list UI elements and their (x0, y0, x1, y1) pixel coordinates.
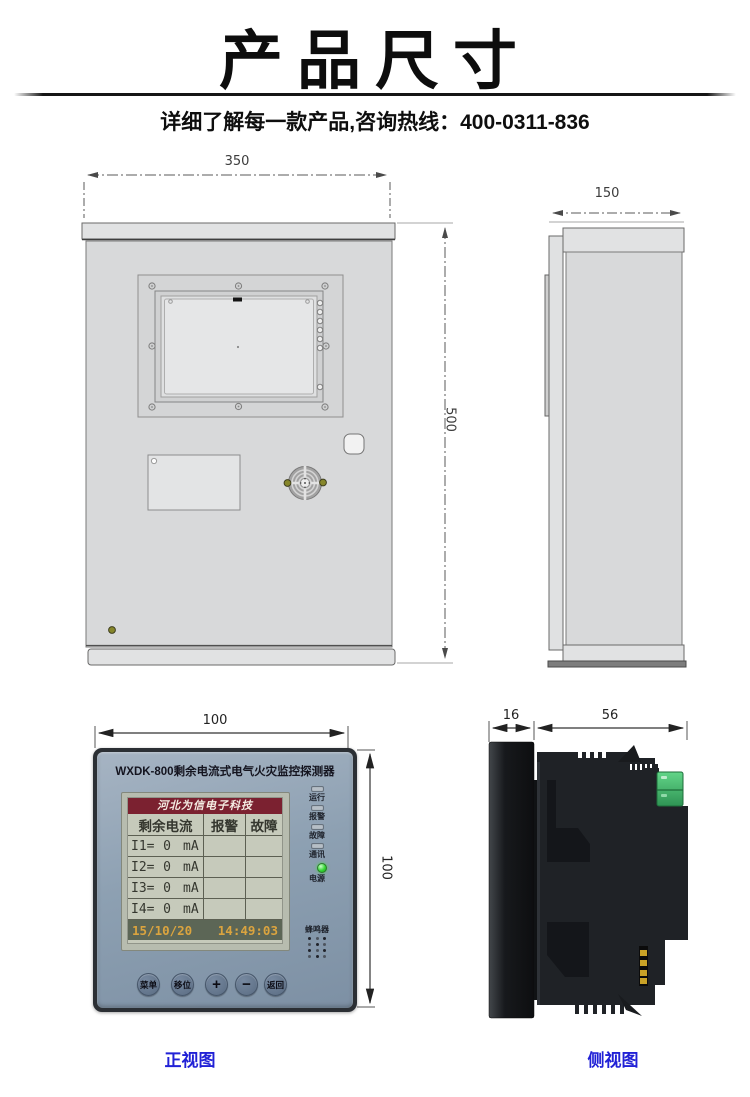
back-button: 返回 (264, 973, 287, 996)
run-led-label: 运行 (309, 793, 325, 802)
detector-front-figure: 100 100 WXDK-800剩余电流式电气火灾监控探测器 河北为信电子科技 … (85, 715, 395, 1015)
status-led-column: 运行 报警 故障 通讯 电源 (302, 786, 332, 886)
lcd-row-i4: I4=0mA (128, 899, 282, 920)
lcd-time: 14:49:03 (218, 923, 278, 938)
device-body-dim: 56 (580, 708, 640, 723)
shift-button: 移位 (171, 973, 194, 996)
fault-led-label: 故障 (309, 831, 325, 840)
lcd-row-i3: I3=0mA (128, 878, 282, 899)
comm-led (311, 843, 324, 849)
lcd-screen: 河北为信电子科技 剩余电流 报警 故障 I1=0mA I2=0mA I3=0mA (127, 797, 283, 944)
buzzer-holes (308, 937, 328, 958)
channel-label: I1= (131, 839, 159, 854)
device-height-dim: 100 (379, 853, 394, 883)
side-view-caption: 侧视图 (578, 1046, 648, 1071)
lcd-table: 剩余电流 报警 故障 I1=0mA I2=0mA I3=0mA I4= (128, 814, 282, 920)
alarm-led (311, 805, 324, 811)
detector-side-drawing (480, 710, 705, 1022)
lcd-col-header-alarm: 报警 (204, 814, 246, 835)
channel-value: 0 (159, 860, 175, 875)
fault-led (311, 824, 324, 830)
channel-label: I3= (131, 881, 159, 896)
channel-label: I2= (131, 860, 159, 875)
lcd-row-i1: I1=0mA (128, 836, 282, 857)
cabinet-side-body (545, 228, 686, 667)
cabinet-bottom-led (109, 627, 116, 634)
detector-model-title: WXDK-800剩余电流式电气火灾监控探测器 (103, 763, 347, 779)
minus-button: − (235, 973, 258, 996)
speaker-screw-right (320, 479, 327, 486)
page-title: 产品尺寸 (0, 10, 750, 102)
comm-led-label: 通讯 (309, 850, 325, 859)
device-bezel-dim: 16 (491, 708, 531, 723)
cabinet-front-drawing (75, 160, 475, 695)
cabinet-side-figure: 150 (540, 190, 710, 685)
cabinet-height-dim: 500 (443, 404, 458, 436)
channel-unit: mA (183, 902, 199, 917)
channel-unit: mA (183, 881, 199, 896)
lcd-brand-banner: 河北为信电子科技 (128, 798, 282, 814)
terminal-block (657, 772, 683, 806)
lcd-col-header-fault: 故障 (246, 814, 282, 835)
lcd-date: 15/10/20 (132, 923, 192, 938)
device-width-dim: 100 (180, 713, 250, 728)
cabinet-display-panel (138, 275, 343, 417)
lcd-col-header-residual-current: 剩余电流 (128, 814, 204, 835)
lcd-row-i2: I2=0mA (128, 857, 282, 878)
channel-value: 0 (159, 839, 175, 854)
channel-label: I4= (131, 902, 159, 917)
channel-value: 0 (159, 881, 175, 896)
cabinet-nameplate (148, 455, 240, 510)
plus-button: + (205, 973, 228, 996)
device-height-dimension (357, 750, 375, 1007)
hotline-subtitle: 详细了解每一款产品,咨询热线：400-0311-836 (0, 106, 750, 136)
run-led (311, 786, 324, 792)
power-led (317, 863, 327, 873)
power-led-label: 电源 (309, 874, 325, 883)
channel-unit: mA (183, 839, 199, 854)
product-dimensions-page: 产品尺寸 详细了解每一款产品,咨询热线：400-0311-836 (0, 0, 750, 1097)
menu-button: 菜单 (137, 973, 160, 996)
lcd-status-bar: 15/10/20 14:49:03 (128, 920, 282, 940)
detector-side-figure: 16 56 (480, 710, 705, 1022)
channel-value: 0 (159, 902, 175, 917)
buzzer-label: 蜂鸣器 (299, 924, 335, 935)
depth-dimension-lines (549, 213, 684, 222)
cabinet-width-dim: 350 (187, 154, 287, 169)
channel-unit: mA (183, 860, 199, 875)
cabinet-keyhole (344, 434, 364, 454)
header-divider (14, 93, 736, 96)
speaker-screw-left (284, 480, 291, 487)
front-view-caption: 正视图 (155, 1046, 225, 1071)
cabinet-depth-dim: 150 (577, 186, 637, 201)
alarm-led-label: 报警 (309, 812, 325, 821)
width-dimension-lines (84, 175, 390, 218)
cabinet-side-drawing (540, 190, 710, 685)
device-side-dimensions (489, 721, 687, 742)
device-width-dimension (95, 726, 348, 748)
detector-side-body (489, 742, 688, 1018)
cabinet-front-figure: 350 500 (75, 160, 475, 695)
height-dimension-lines (397, 223, 453, 663)
